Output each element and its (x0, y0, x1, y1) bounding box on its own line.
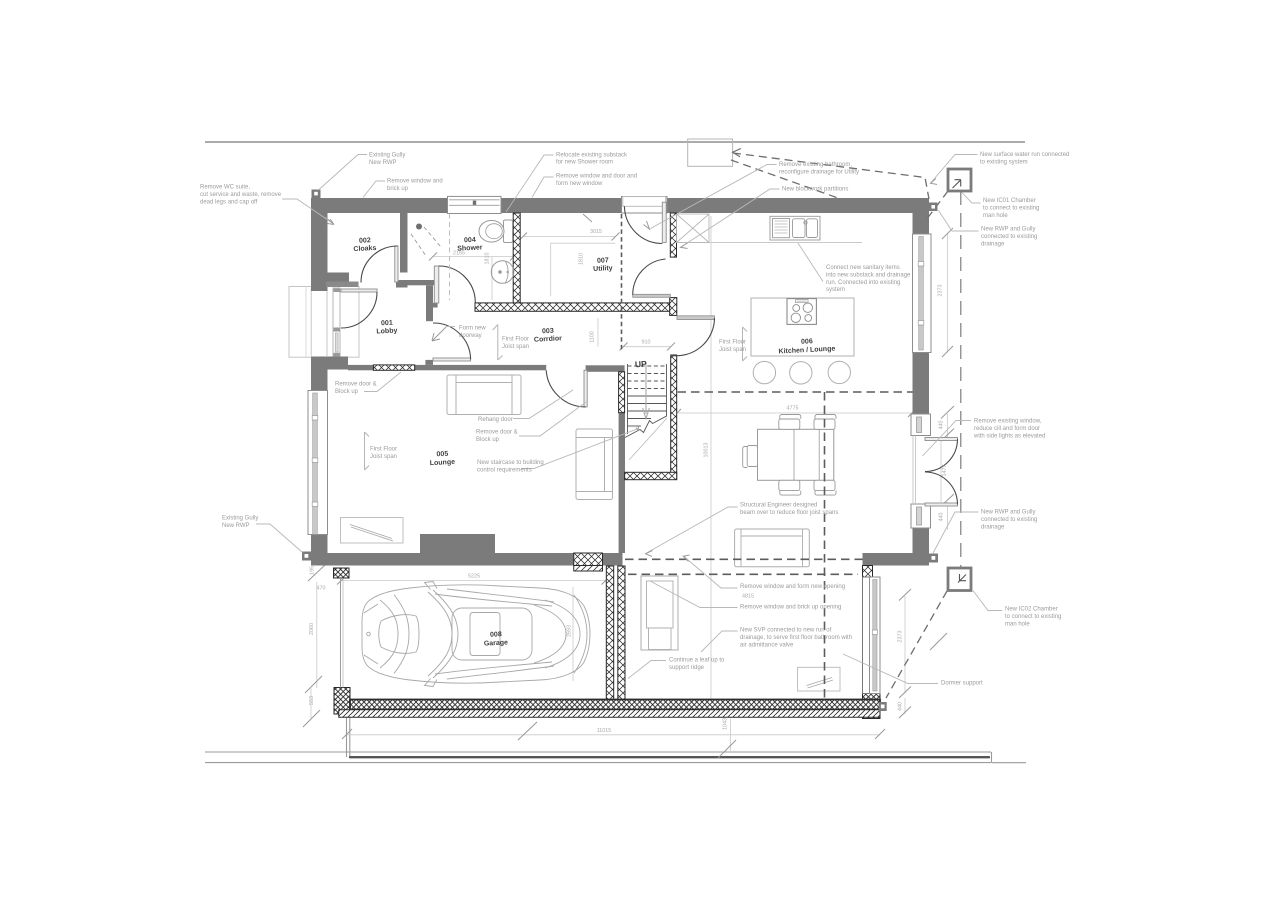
svg-text:support ridge: support ridge (669, 665, 705, 671)
svg-text:Remove window and door and: Remove window and door and (556, 174, 637, 180)
svg-text:First Floor: First Floor (719, 340, 746, 346)
svg-text:New IC01 Chamber: New IC01 Chamber (983, 198, 1036, 204)
svg-text:New surface water run connecte: New surface water run connected (980, 152, 1069, 158)
svg-text:Garage: Garage (484, 639, 509, 647)
svg-text:reduce cill and form door: reduce cill and form door (974, 426, 1040, 432)
svg-text:brick up: brick up (387, 186, 409, 192)
svg-text:4775: 4775 (787, 406, 799, 412)
svg-text:Joist span: Joist span (502, 344, 529, 350)
svg-text:Cloaks: Cloaks (353, 245, 376, 253)
svg-text:man hole: man hole (1005, 621, 1030, 627)
svg-text:Remove door &: Remove door & (335, 382, 377, 388)
svg-text:to connect to existing: to connect to existing (983, 205, 1039, 211)
svg-text:3015: 3015 (590, 229, 602, 235)
svg-text:Structural Engineer designed: Structural Engineer designed (740, 503, 817, 509)
svg-text:Existing Gully: Existing Gully (369, 153, 405, 159)
svg-text:Remove window and: Remove window and (387, 179, 443, 185)
svg-text:dead legs and cap off: dead legs and cap off (200, 199, 258, 205)
svg-text:Remove door &: Remove door & (476, 430, 518, 436)
svg-text:Block up: Block up (335, 389, 359, 395)
svg-text:reconfigure drainage for Utili: reconfigure drainage for Utility (779, 169, 859, 175)
svg-text:New RWP and Gully: New RWP and Gully (981, 510, 1035, 516)
svg-text:004: 004 (464, 237, 476, 245)
svg-text:2693: 2693 (567, 625, 573, 637)
svg-text:New RWP: New RWP (369, 160, 397, 166)
svg-text:440: 440 (939, 513, 945, 522)
svg-text:Remove existing bathroom,: Remove existing bathroom, (779, 162, 852, 168)
svg-text:drainage: drainage (981, 241, 1005, 247)
svg-text:man hole: man hole (983, 213, 1008, 219)
svg-text:Existing Gully: Existing Gully (222, 516, 258, 522)
svg-text:910: 910 (642, 340, 651, 346)
svg-text:2060: 2060 (309, 623, 315, 635)
svg-text:First Floor: First Floor (370, 447, 397, 453)
svg-text:doorway: doorway (459, 333, 482, 339)
svg-text:Corrdior: Corrdior (534, 335, 563, 343)
svg-text:New RWP and Gully: New RWP and Gully (981, 227, 1035, 233)
svg-text:Relocate existing substack: Relocate existing substack (556, 152, 628, 158)
svg-text:11015: 11015 (597, 728, 612, 734)
svg-text:control requirements: control requirements (477, 467, 532, 473)
svg-text:run. Connected into existing: run. Connected into existing (826, 280, 900, 286)
svg-text:Connect new sanitary items: Connect new sanitary items (826, 265, 900, 271)
svg-text:Rehang door: Rehang door (478, 417, 513, 423)
svg-text:Lobby: Lobby (376, 327, 397, 335)
svg-text:system: system (826, 287, 845, 293)
svg-text:New staircase to building: New staircase to building (477, 460, 544, 466)
svg-text:with side lights as elevated: with side lights as elevated (973, 433, 1045, 439)
svg-text:New SVP connected to new run o: New SVP connected to new run of (740, 628, 832, 634)
svg-text:007: 007 (597, 257, 609, 265)
svg-text:2165: 2165 (453, 251, 465, 257)
svg-text:connected to existing: connected to existing (981, 517, 1037, 523)
svg-text:connected to existing: connected to existing (981, 234, 1037, 240)
svg-text:into new substack and drainage: into new substack and drainage (826, 272, 911, 278)
svg-text:1810: 1810 (485, 253, 491, 265)
svg-text:440: 440 (898, 702, 904, 711)
svg-text:Form new: Form new (459, 326, 486, 332)
svg-text:drainage: drainage (981, 524, 1005, 530)
svg-text:New IC02 Chamber: New IC02 Chamber (1005, 607, 1058, 613)
svg-text:195: 195 (310, 566, 316, 575)
svg-text:1043: 1043 (723, 718, 729, 730)
svg-text:drainage, to serve first floor: drainage, to serve first floor bathroom … (740, 635, 852, 641)
svg-text:Joist span: Joist span (719, 347, 746, 353)
svg-text:air admittance valve: air admittance valve (740, 642, 794, 648)
svg-text:to connect to existing: to connect to existing (1005, 614, 1061, 620)
svg-text:New RWP: New RWP (222, 523, 250, 529)
svg-text:beam over to reduce floor jois: beam over to reduce floor joist spans (740, 510, 838, 516)
svg-text:003: 003 (542, 328, 554, 336)
svg-text:for new Shower room: for new Shower room (556, 160, 613, 166)
svg-text:form new window: form new window (556, 181, 603, 187)
svg-text:005: 005 (436, 451, 448, 459)
svg-text:Block up: Block up (476, 437, 500, 443)
svg-text:440: 440 (939, 421, 945, 430)
svg-text:First Floor: First Floor (502, 337, 529, 343)
svg-text:008: 008 (490, 631, 502, 639)
svg-text:1100: 1100 (590, 331, 596, 343)
svg-text:2373: 2373 (938, 285, 944, 297)
svg-text:002: 002 (359, 237, 371, 245)
svg-text:Remove window and brick up ope: Remove window and brick up opening (740, 605, 841, 611)
svg-text:006: 006 (801, 338, 813, 346)
svg-text:Utility: Utility (593, 265, 613, 273)
svg-text:Dormer support: Dormer support (941, 681, 983, 687)
svg-text:2373: 2373 (898, 631, 904, 643)
svg-text:Lounge: Lounge (430, 459, 456, 467)
svg-text:Remove existing window,: Remove existing window, (974, 419, 1042, 425)
svg-text:Remove WC suite,: Remove WC suite, (200, 185, 250, 191)
svg-text:Joist span: Joist span (370, 454, 397, 460)
svg-text:4815: 4815 (742, 594, 754, 600)
svg-text:Remove window and form new ope: Remove window and form new opening (740, 584, 845, 590)
svg-text:5225: 5225 (468, 574, 480, 580)
svg-text:1477: 1477 (942, 465, 948, 477)
svg-text:470: 470 (317, 586, 326, 592)
svg-text:001: 001 (381, 320, 393, 328)
svg-text:10013: 10013 (704, 443, 710, 458)
svg-text:cut service and waste, remove: cut service and waste, remove (200, 192, 282, 198)
svg-text:553: 553 (309, 696, 315, 705)
svg-text:Continue a leaf up to: Continue a leaf up to (669, 658, 725, 664)
svg-text:UP: UP (635, 359, 648, 370)
svg-text:New blockwork partitions: New blockwork partitions (782, 187, 848, 193)
svg-text:1810: 1810 (579, 253, 585, 265)
svg-text:to existing system: to existing system (980, 159, 1028, 165)
